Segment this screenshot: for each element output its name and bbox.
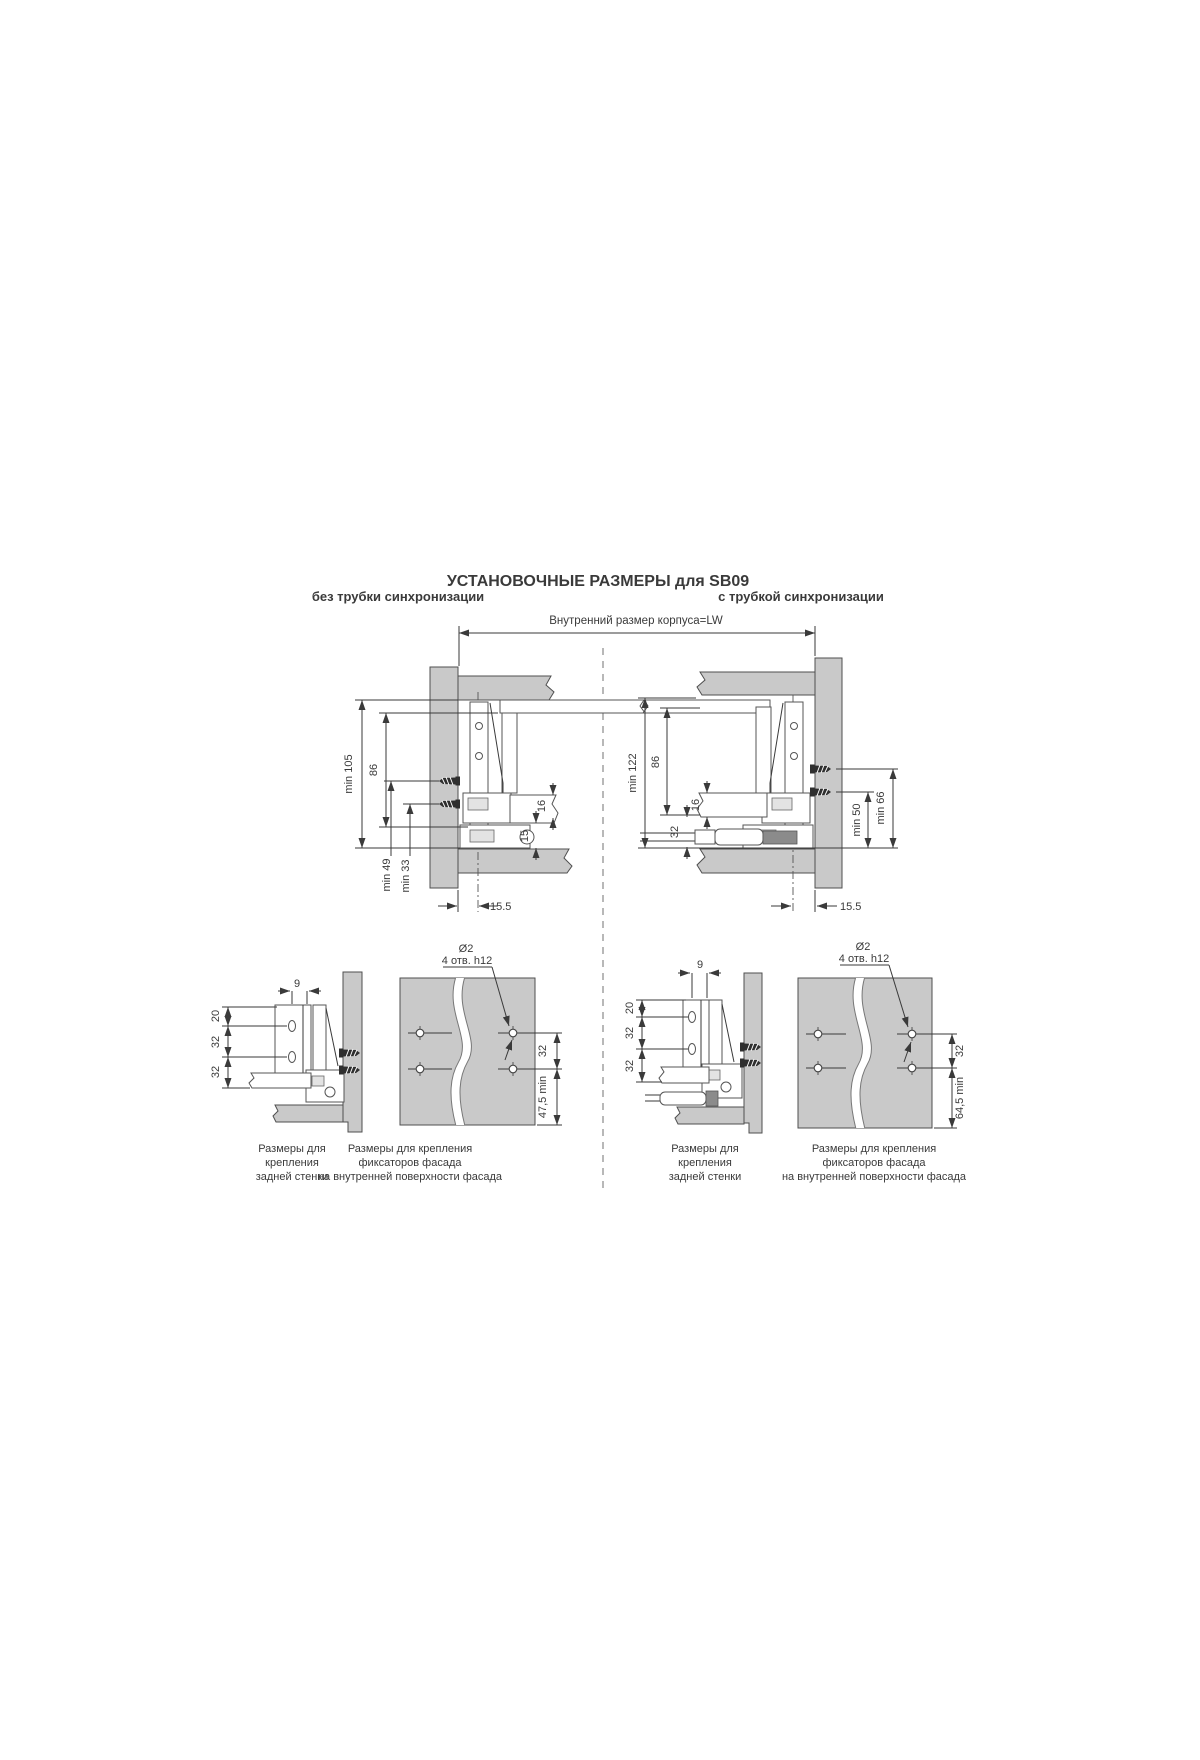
dim-total-height-label: min 122	[627, 753, 639, 792]
caption-line: фиксаторов фасада	[823, 1157, 927, 1169]
document-page: УСТАНОВОЧНЫЕ РАЗМЕРЫ для SB09 без трубки…	[0, 0, 1200, 1760]
dim-20-label: 20	[210, 1010, 222, 1022]
page-title: УСТАНОВОЧНЫЕ РАЗМЕРЫ для SB09	[447, 573, 749, 590]
dim-min49-label: min 49	[381, 858, 393, 891]
caption-line: Размеры для крепления	[812, 1143, 936, 1155]
caption-line: Размеры для	[671, 1143, 739, 1155]
dim-min50-label: min 50	[851, 803, 863, 836]
dim-32-label: 32	[954, 1045, 966, 1057]
caption-line: крепления	[678, 1157, 732, 1169]
dim-86-label: 86	[368, 764, 380, 776]
hole-diameter-label: Ø2	[856, 941, 871, 953]
caption-line: Размеры для	[258, 1143, 326, 1155]
hole-diameter-label: Ø2	[459, 943, 474, 955]
dim-32-label: 32	[537, 1045, 549, 1057]
caption-line: фиксаторов фасада	[359, 1157, 463, 1169]
top-right-diagram: min 122 86 16 32 min 50 min 66 15.5	[627, 658, 898, 913]
dim-20-label: 20	[624, 1002, 636, 1014]
dim-9-label: 9	[697, 959, 703, 971]
caption-line: Размеры для крепления	[348, 1143, 472, 1155]
caption-line: на внутренней поверхности фасада	[318, 1171, 503, 1183]
dim-86-label: 86	[650, 756, 662, 768]
caption-line: на внутренней поверхности фасада	[782, 1171, 967, 1183]
top-left-diagram: min 105 86 min 49 min 33 16 15 15.5	[343, 667, 645, 913]
dim-min33-label: min 33	[400, 859, 412, 892]
caption-line: крепления	[265, 1157, 319, 1169]
hole-spec-label: 4 отв. h12	[442, 955, 492, 967]
dim-16-label: 16	[536, 800, 548, 812]
dim-16-label: 16	[690, 799, 702, 811]
dim-min66-label: min 66	[875, 791, 887, 824]
right-column-subtitle: с трубкой синхронизации	[718, 589, 884, 604]
sync-tube	[640, 829, 797, 845]
left-column-subtitle: без трубки синхронизации	[312, 589, 484, 604]
dim-155-label: 15.5	[840, 901, 861, 913]
dim-32-label: 32	[669, 826, 681, 838]
dim-475min-label: 47,5 min	[537, 1076, 549, 1118]
sync-tube	[645, 1091, 718, 1106]
dim-32-label: 32	[210, 1036, 222, 1048]
technical-drawing: УСТАНОВОЧНЫЕ РАЗМЕРЫ для SB09 без трубки…	[0, 0, 1200, 1760]
rear-wall-diagram-left: 9 20 32 32 Размеры для крепления задней …	[210, 972, 362, 1183]
dim-32-label: 32	[624, 1027, 636, 1039]
dim-15-label: 15	[519, 830, 531, 842]
cabinet-inner-width-label: Внутренний размер корпуса=LW	[549, 615, 723, 627]
dim-total-height-label: min 105	[343, 754, 355, 793]
dim-32-label: 32	[624, 1060, 636, 1072]
dim-155-label: 15.5	[490, 901, 511, 913]
dim-32-label: 32	[210, 1066, 222, 1078]
lw-dimension	[459, 626, 815, 666]
facade-holes-diagram-right: Ø2 4 отв. h12 32 64,5 min Размеры для кр…	[782, 941, 967, 1183]
dim-645min-label: 64,5 min	[954, 1077, 966, 1119]
caption-line: задней стенки	[669, 1171, 742, 1183]
hole-spec-label: 4 отв. h12	[839, 953, 889, 965]
rear-wall-diagram-right: 9 20 32 32 Размеры для крепления задней …	[624, 959, 762, 1183]
dim-9-label: 9	[294, 978, 300, 990]
